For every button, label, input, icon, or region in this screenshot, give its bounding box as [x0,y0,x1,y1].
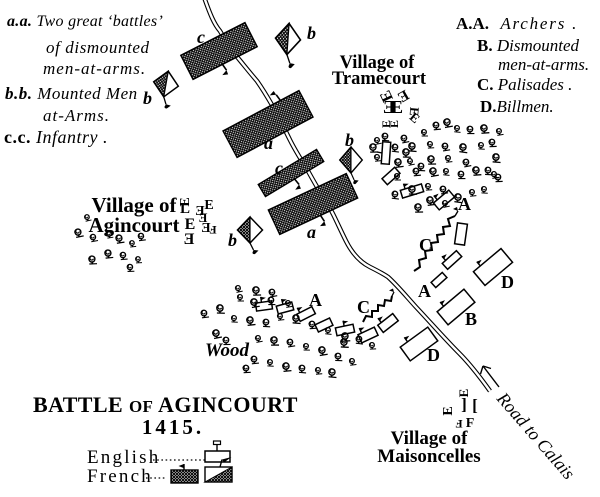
svg-text:F: F [209,223,216,237]
svg-text:b: b [345,130,354,150]
svg-text:E: E [387,120,401,128]
svg-text:at-Arms.: at-Arms. [43,106,110,125]
svg-text:C: C [357,297,370,317]
svg-text:B: B [465,309,477,329]
svg-text:English: English [87,447,160,468]
svg-text:E: E [184,231,195,248]
svg-text:a: a [307,222,316,242]
svg-text:a: a [264,133,273,153]
svg-text:D: D [427,345,440,365]
svg-text:A: A [309,290,322,310]
svg-text:C. Palisades .: C. Palisades . [477,75,572,94]
svg-text:b.b. Mounted Men: b.b. Mounted Men [5,84,138,103]
svg-text:B. Dismounted: B. Dismounted [477,36,580,55]
svg-text:A: A [418,281,431,301]
svg-text:Wood: Wood [205,340,249,361]
svg-text:b: b [228,230,237,250]
svg-text:men-at-arms.: men-at-arms. [43,59,146,78]
svg-text:1415.: 1415. [142,415,204,439]
svg-text:L: L [180,201,190,217]
svg-text:E: E [441,406,456,415]
svg-text:E: E [391,97,403,117]
svg-text:Maisoncelles: Maisoncelles [377,446,480,467]
svg-text:c.c. Infantry .: c.c. Infantry . [4,127,108,147]
svg-text:D.Billmen.: D.Billmen. [480,97,554,116]
svg-text:E: E [201,221,210,236]
svg-text:A: A [458,194,471,214]
svg-text:C: C [419,235,432,255]
svg-text:b: b [143,88,152,108]
svg-text:c: c [275,158,283,178]
svg-text:]: ] [461,395,467,414]
svg-text:b: b [307,23,316,43]
svg-text:French: French [87,466,153,487]
svg-text:a.a. Two great ‘battles’: a.a. Two great ‘battles’ [7,13,163,30]
svg-text:BATTLE OF AGINCOURT: BATTLE OF AGINCOURT [33,392,298,417]
svg-text:A.A. Archers .: A.A. Archers . [456,14,578,33]
svg-text:men-at-arms.: men-at-arms. [498,55,589,74]
svg-text:of dismounted: of dismounted [46,38,150,57]
svg-text:Agincourt: Agincourt [89,213,180,237]
svg-text:Tramecourt: Tramecourt [332,69,427,89]
svg-text:[: [ [472,396,478,415]
svg-text:D: D [501,272,514,292]
svg-text:c: c [197,27,205,47]
